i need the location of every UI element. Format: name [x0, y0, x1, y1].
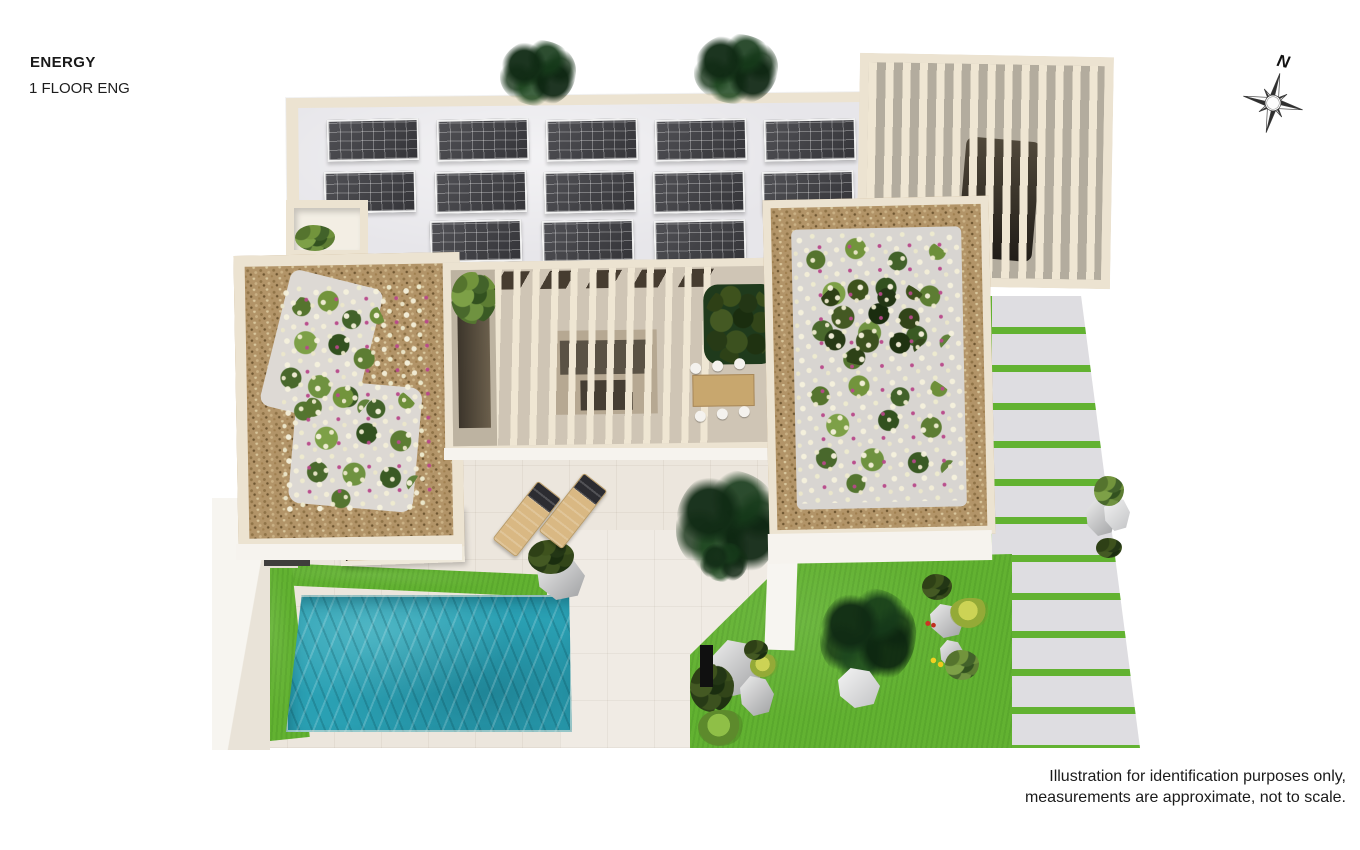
dining-chair	[734, 358, 745, 369]
floor-plan-illustration: N ENERGY 1 FLOOR ENG Illustration for id…	[0, 0, 1360, 850]
flower-speckles	[793, 230, 965, 503]
page-subtitle: 1 FLOOR ENG	[29, 80, 130, 97]
courtyard-wall-face	[444, 448, 784, 460]
solar-panel	[764, 118, 857, 162]
solar-panel	[327, 118, 420, 162]
solar-panel	[437, 118, 530, 162]
page-title: ENERGY	[30, 54, 96, 71]
dining-table	[692, 374, 754, 407]
lawn-tree	[820, 588, 916, 684]
tree	[694, 34, 778, 104]
green-roof-garden-left	[233, 252, 464, 550]
solar-panel	[435, 170, 528, 214]
patio-bush	[700, 542, 748, 582]
dining-chair	[739, 406, 750, 417]
compass-rose	[1240, 70, 1306, 136]
disclaimer-line-1: Illustration for identification purposes…	[1025, 766, 1346, 787]
tree	[500, 40, 576, 106]
garden-bollard	[700, 645, 713, 687]
solar-panel	[653, 170, 746, 214]
driveway-plant	[1096, 538, 1122, 558]
solar-panel	[546, 118, 639, 162]
disclaimer-line-2: measurements are approximate, not to sca…	[1025, 787, 1346, 808]
green-roof-garden-right	[762, 196, 995, 539]
flower-speckles	[280, 284, 434, 515]
dining-chair	[717, 408, 728, 419]
yellow-flowers	[928, 654, 946, 670]
garden-wall-face	[236, 544, 462, 560]
pergola-slats	[495, 267, 715, 446]
solar-panel	[544, 170, 637, 214]
red-flowers	[923, 618, 937, 630]
solar-panel	[655, 118, 748, 162]
disclaimer-text: Illustration for identification purposes…	[1025, 766, 1346, 808]
dining-chair	[690, 363, 701, 374]
solar-panel	[542, 219, 635, 263]
solar-panel	[654, 219, 747, 263]
dining-chair	[712, 360, 723, 371]
garden-wall-face	[768, 530, 992, 564]
courtyard-pergola	[443, 258, 786, 455]
swimming-pool	[286, 595, 572, 732]
exterior-wall	[212, 540, 270, 750]
roof-access-ramp	[764, 560, 797, 651]
